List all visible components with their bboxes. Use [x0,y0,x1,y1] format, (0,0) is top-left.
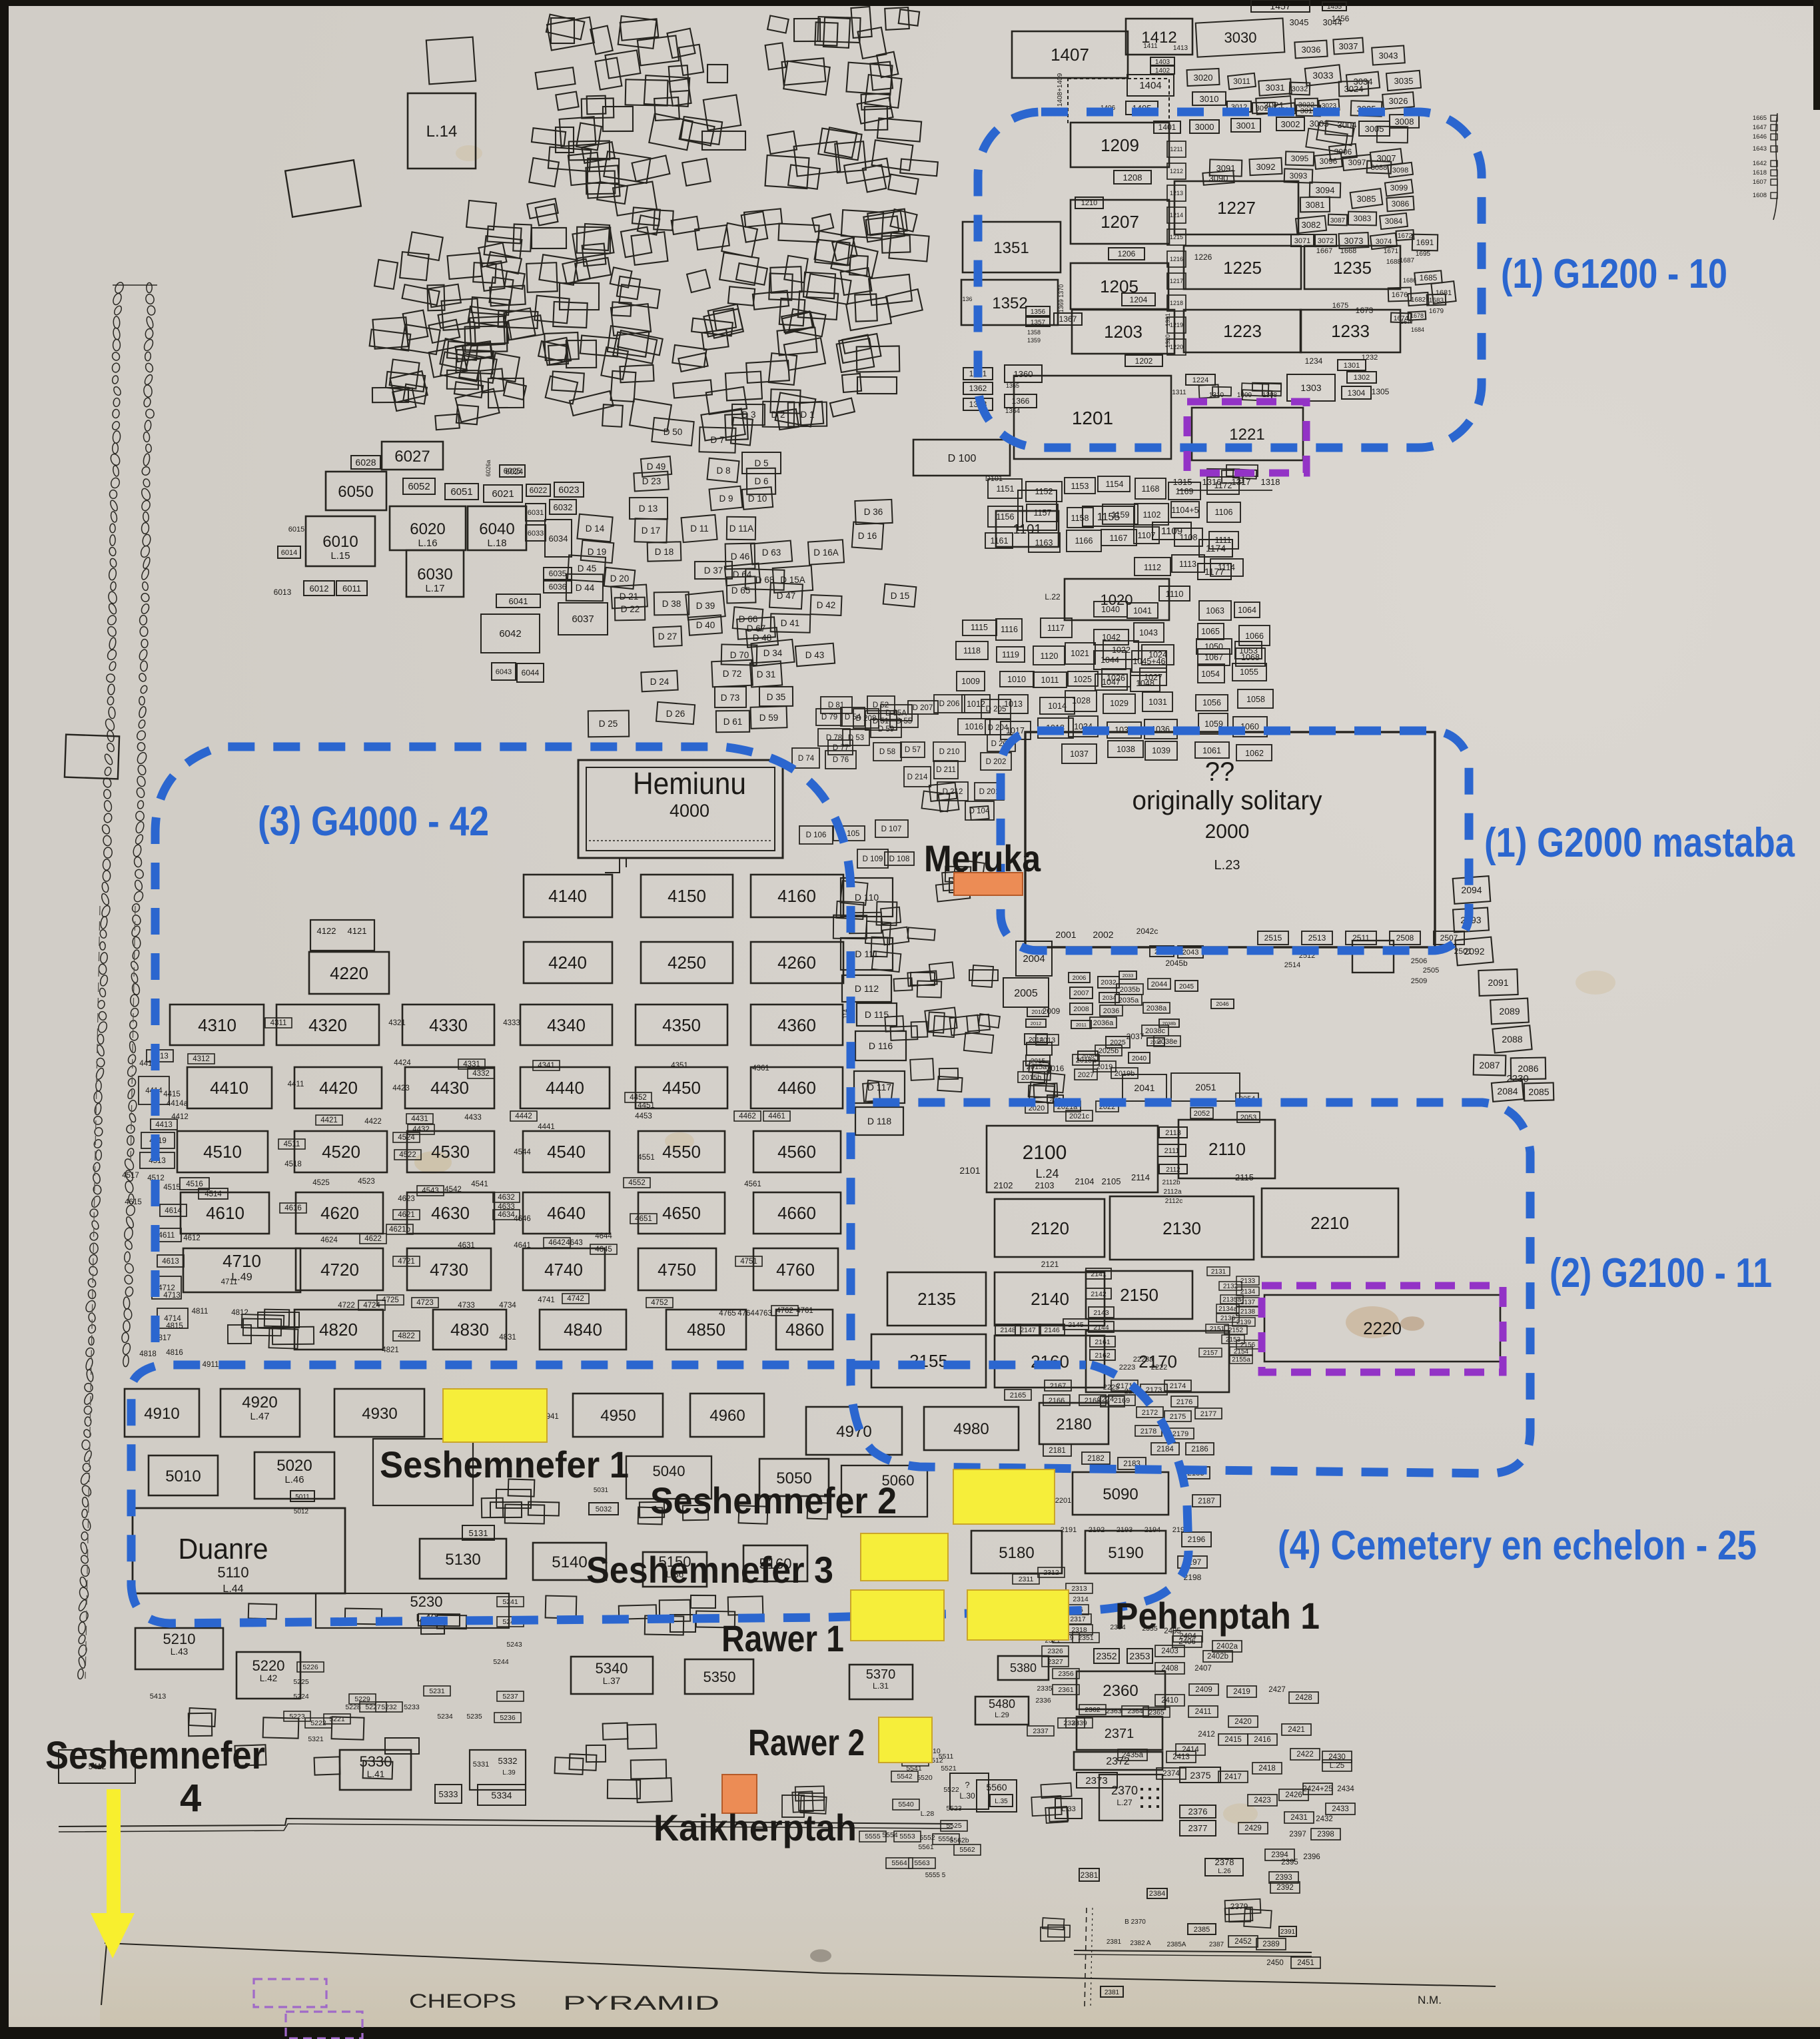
svg-text:2360: 2360 [1103,1682,1138,1700]
svg-text:4515: 4515 [163,1184,181,1192]
svg-text:3020: 3020 [1194,73,1213,83]
svg-text:1064: 1064 [1238,606,1256,615]
svg-text:5110: 5110 [217,1564,248,1581]
svg-text:D 202: D 202 [986,758,1007,766]
svg-text:1665: 1665 [1753,115,1767,122]
svg-text:2151: 2151 [1210,1326,1225,1333]
svg-text:2019b: 2019b [1115,1070,1135,1078]
svg-text:1305: 1305 [1372,387,1390,396]
svg-text:2092: 2092 [1464,946,1484,957]
svg-text:2412: 2412 [1198,1731,1215,1739]
svg-text:4850: 4850 [687,1320,725,1340]
svg-text:4760: 4760 [776,1260,815,1280]
svg-text:4552: 4552 [628,1179,646,1187]
svg-text:4621b: 4621b [389,1226,410,1234]
svg-text:4543: 4543 [422,1187,439,1195]
svg-text:4: 4 [180,1777,201,1820]
svg-text:4646: 4646 [514,1215,531,1223]
svg-text:5370: 5370 [866,1667,896,1682]
svg-text:4462: 4462 [739,1112,756,1120]
svg-text:D 70: D 70 [730,650,749,660]
svg-text:4816: 4816 [166,1349,183,1357]
svg-text:2136: 2136 [1220,1315,1236,1322]
svg-text:2378: 2378 [1215,1857,1234,1867]
svg-text:2176: 2176 [1176,1398,1192,1406]
svg-text:4333: 4333 [503,1019,520,1027]
svg-text:2132: 2132 [1223,1283,1238,1290]
svg-text:1029: 1029 [1110,699,1129,708]
svg-text:4610: 4610 [206,1203,244,1223]
svg-text:2130: 2130 [1162,1218,1201,1238]
svg-text:2432: 2432 [1316,1815,1333,1823]
svg-text:2311: 2311 [1019,1575,1034,1583]
svg-text:4623: 4623 [398,1195,415,1203]
svg-text:L.39: L.39 [502,1769,516,1777]
svg-text:1321: 1321 [1164,313,1171,326]
svg-text:2223a: 2223a [1133,1356,1154,1364]
svg-text:2174: 2174 [1170,1382,1186,1390]
svg-text:5560: 5560 [986,1782,1007,1793]
svg-text:3097: 3097 [1348,158,1366,167]
svg-text:2335: 2335 [1037,1685,1053,1693]
svg-text:4321: 4321 [388,1019,406,1027]
svg-text:1225: 1225 [1223,258,1262,278]
svg-text:1220: 1220 [1170,344,1183,350]
svg-text:2385: 2385 [1194,1926,1210,1934]
svg-text:5228: 5228 [345,1703,361,1711]
svg-text:2505: 2505 [1423,967,1439,975]
svg-text:4711: 4711 [221,1278,238,1286]
svg-text:2169: 2169 [1114,1397,1130,1405]
svg-text:6051: 6051 [450,486,472,498]
svg-text:4612: 4612 [183,1234,201,1242]
svg-text:1011: 1011 [1041,675,1059,685]
svg-text:4642: 4642 [548,1239,566,1247]
svg-text:Kaikherptah: Kaikherptah [654,1807,857,1848]
svg-text:Seshemnefer 1: Seshemnefer 1 [380,1443,629,1485]
svg-text:D 59: D 59 [878,725,894,733]
svg-text:5564: 5564 [891,1859,907,1867]
svg-text:4611: 4611 [159,1232,175,1240]
svg-text:2312: 2312 [1043,1569,1059,1577]
svg-text:2105: 2105 [1102,1176,1121,1186]
svg-text:4615: 4615 [125,1198,142,1206]
svg-text:2363: 2363 [1106,1707,1122,1715]
svg-text:4750: 4750 [658,1260,696,1280]
svg-text:2351: 2351 [1078,1634,1094,1642]
svg-text:1643: 1643 [1753,145,1767,153]
svg-text:4122: 4122 [317,926,336,936]
svg-text:2433: 2433 [1332,1805,1349,1813]
svg-text:1116: 1116 [1001,625,1018,634]
svg-text:3045: 3045 [1290,17,1309,27]
svg-text:2015b: 2015b [1021,1074,1042,1082]
svg-text:2162: 2162 [1095,1352,1111,1360]
svg-text:2223: 2223 [1119,1364,1135,1372]
svg-text:L.28: L.28 [921,1810,935,1818]
svg-text:6042: 6042 [499,628,521,639]
svg-text:6052: 6052 [408,481,430,492]
svg-text:3074: 3074 [1376,238,1392,246]
svg-text:1158: 1158 [1071,514,1089,523]
svg-text:1104+5: 1104+5 [1171,506,1198,515]
svg-text:2402b: 2402b [1207,1653,1228,1661]
svg-text:D 100: D 100 [948,453,977,464]
svg-text:2115: 2115 [1235,1172,1254,1182]
svg-text:2009: 2009 [1043,1007,1061,1016]
svg-text:1357: 1357 [1031,319,1046,326]
svg-text:2222: 2222 [1151,1364,1167,1372]
svg-text:4831: 4831 [499,1334,516,1342]
svg-text:4450: 4450 [662,1078,701,1098]
svg-text:6031: 6031 [528,509,544,517]
svg-text:4630: 4630 [431,1203,470,1223]
svg-text:1118: 1118 [963,646,981,655]
svg-text:2451: 2451 [1297,1959,1314,1967]
svg-text:5334: 5334 [491,1790,512,1801]
svg-text:D 116: D 116 [869,1040,893,1051]
svg-text:2137: 2137 [1240,1299,1256,1306]
svg-text:1009: 1009 [961,677,980,686]
svg-text:1037: 1037 [1070,749,1089,759]
svg-text:4818: 4818 [139,1350,157,1358]
svg-text:3043: 3043 [1379,51,1398,61]
svg-text:1219: 1219 [1170,322,1183,328]
svg-text:2362: 2362 [1085,1706,1101,1714]
svg-text:2165: 2165 [1010,1392,1026,1400]
svg-text:3031: 3031 [1266,83,1285,93]
svg-text:2220: 2220 [1363,1318,1402,1338]
svg-text:2146: 2146 [1044,1326,1060,1334]
svg-text:D 64: D 64 [733,570,752,580]
svg-text:D 59: D 59 [759,713,779,723]
svg-text:D 115: D 115 [865,1009,889,1020]
svg-text:4960: 4960 [709,1407,745,1425]
svg-text:5350: 5350 [703,1669,736,1685]
svg-text:1062: 1062 [1245,749,1264,758]
svg-text:D 73: D 73 [721,693,740,703]
svg-text:2008: 2008 [1073,1005,1089,1013]
svg-text:4410: 4410 [210,1078,248,1098]
svg-text:2180: 2180 [1056,1416,1091,1433]
svg-text:1208: 1208 [1123,173,1142,183]
svg-text:4911: 4911 [203,1361,219,1369]
svg-text:4433: 4433 [464,1114,482,1122]
svg-text:2395: 2395 [1281,1858,1298,1866]
svg-text:2339: 2339 [1071,1719,1087,1727]
svg-text:2373: 2373 [1085,1775,1107,1787]
svg-text:2407: 2407 [1194,1665,1212,1673]
svg-text:2140: 2140 [1031,1289,1069,1309]
svg-text:3093: 3093 [1290,171,1308,181]
svg-text:1063: 1063 [1206,606,1224,615]
svg-text:2398: 2398 [1317,1831,1334,1838]
svg-text:2413: 2413 [1172,1753,1190,1761]
svg-text:2178: 2178 [1140,1427,1156,1435]
svg-text:2040: 2040 [1132,1055,1147,1062]
svg-text:2094: 2094 [1461,885,1482,895]
svg-text:3000: 3000 [1195,122,1214,132]
svg-text:3086: 3086 [1392,199,1410,208]
svg-text:1318: 1318 [1261,477,1280,487]
svg-text:1320: 1320 [1164,334,1171,348]
svg-text:(2) G2100 - 11: (2) G2100 - 11 [1550,1250,1772,1296]
svg-text:6028: 6028 [355,457,376,468]
svg-text:1673: 1673 [1356,306,1374,315]
svg-text:6022: 6022 [530,486,548,495]
svg-text:D 74: D 74 [798,755,815,763]
svg-text:2043: 2043 [1182,949,1199,957]
svg-text:3011: 3011 [1233,77,1250,86]
svg-text:5210: 5210 [163,1631,196,1647]
svg-text:4431: 4431 [411,1115,428,1123]
svg-text:3092: 3092 [1256,162,1276,172]
svg-text:4523: 4523 [358,1178,375,1186]
svg-text:4720: 4720 [320,1260,359,1280]
svg-text:4517: 4517 [122,1172,139,1180]
svg-text:1112: 1112 [1144,563,1161,572]
svg-text:6035: 6035 [549,569,567,578]
svg-text:2037: 2037 [1127,1032,1144,1041]
svg-text:2044: 2044 [1151,981,1167,989]
svg-text:3090: 3090 [1209,173,1228,183]
svg-text:D 2: D 2 [771,410,785,420]
svg-text:1235: 1235 [1333,258,1372,278]
svg-text:1618: 1618 [1753,169,1767,177]
svg-text:1607: 1607 [1753,179,1767,186]
svg-text:1365: 1365 [1006,382,1019,389]
svg-text:1110: 1110 [1166,589,1184,599]
svg-text:D 211: D 211 [936,766,956,774]
svg-text:1358: 1358 [1027,329,1041,336]
svg-text:4811: 4811 [192,1308,209,1316]
svg-text:1311: 1311 [1172,389,1186,396]
svg-text:2161: 2161 [1095,1338,1111,1346]
svg-text:2179: 2179 [1172,1430,1188,1438]
svg-text:4815: 4815 [166,1322,183,1330]
svg-text:1056: 1056 [1202,698,1221,707]
svg-text:2191: 2191 [1061,1526,1077,1534]
svg-text:4160: 4160 [777,886,816,906]
svg-text:1012: 1012 [967,699,985,709]
svg-text:4412: 4412 [171,1113,189,1121]
svg-text:2314: 2314 [1073,1595,1089,1603]
svg-text:D 58: D 58 [879,748,895,756]
svg-text:4920: 4920 [242,1394,277,1412]
svg-text:2434: 2434 [1337,1785,1354,1793]
svg-text:6040: 6040 [479,520,514,538]
svg-text:D 16: D 16 [858,531,877,541]
svg-text:D 46: D 46 [731,552,750,562]
svg-text:3026: 3026 [1389,96,1408,106]
svg-text:2187: 2187 [1198,1497,1215,1505]
svg-text:L.30: L.30 [959,1791,975,1801]
svg-text:1013: 1013 [1004,699,1023,709]
svg-text:5562b: 5562b [949,1836,969,1844]
svg-text:1366: 1366 [1012,396,1030,406]
svg-text:D 45: D 45 [578,564,597,574]
svg-text:2374: 2374 [1162,1770,1180,1778]
svg-text:4980: 4980 [953,1420,989,1438]
svg-text:1216: 1216 [1170,256,1183,262]
svg-text:5331: 5331 [473,1761,489,1769]
svg-text:D 44: D 44 [576,583,595,593]
svg-text:5243: 5243 [506,1641,522,1649]
svg-text:2385A: 2385A [1167,1941,1186,1948]
svg-text:5237: 5237 [502,1693,518,1701]
svg-text:2021c: 2021c [1069,1112,1089,1120]
svg-text:6043: 6043 [496,668,512,676]
svg-text:1677: 1677 [1400,318,1414,325]
svg-text:2084: 2084 [1497,1086,1518,1096]
svg-text:D 22: D 22 [621,604,640,614]
svg-text:L.25: L.25 [1330,1762,1344,1770]
svg-text:1671: 1671 [1384,248,1399,255]
svg-text:2225: 2225 [1103,1384,1119,1392]
svg-text:2313: 2313 [1071,1585,1087,1593]
svg-text:5555: 5555 [865,1833,881,1840]
svg-text:2104: 2104 [1075,1176,1095,1186]
svg-text:4330: 4330 [429,1015,468,1035]
svg-text:3035: 3035 [1394,76,1414,86]
svg-text:D 11: D 11 [690,524,709,534]
svg-text:2410: 2410 [1161,1697,1178,1705]
svg-text:2052: 2052 [1194,1110,1210,1118]
svg-text:2138: 2138 [1240,1308,1256,1316]
svg-text:1211: 1211 [1170,146,1182,153]
svg-text:2002: 2002 [1093,929,1113,940]
svg-text:2147: 2147 [1020,1326,1036,1334]
svg-text:2429: 2429 [1244,1825,1262,1833]
svg-text:1672: 1672 [1398,232,1413,240]
svg-text:4763: 4763 [755,1310,772,1318]
svg-text:3005: 3005 [1365,124,1384,134]
svg-text:2112: 2112 [1166,1166,1180,1174]
svg-text:Meruka: Meruka [924,837,1041,879]
svg-text:D 9: D 9 [719,494,733,504]
svg-text:6030: 6030 [417,566,452,584]
svg-text:5236: 5236 [500,1714,516,1722]
svg-text:1068: 1068 [1241,653,1260,662]
svg-text:D 65: D 65 [731,586,751,596]
svg-text:1106: 1106 [1215,508,1233,517]
svg-text:6037: 6037 [572,613,594,625]
svg-text:4331: 4331 [463,1060,480,1068]
svg-text:1061: 1061 [1202,746,1221,755]
svg-text:4950: 4950 [600,1407,636,1425]
svg-text:2391: 2391 [1280,1928,1296,1936]
svg-text:2143: 2143 [1093,1309,1109,1317]
svg-text:2326: 2326 [1047,1647,1063,1655]
svg-text:2006: 2006 [1073,975,1087,981]
svg-text:3072: 3072 [1318,237,1334,245]
svg-text:5234: 5234 [437,1713,453,1721]
svg-text:D 34: D 34 [763,648,783,658]
svg-text:1204: 1204 [1130,295,1148,304]
svg-text:1031: 1031 [1148,697,1167,707]
svg-text:1408+1409: 1408+1409 [1057,73,1064,107]
svg-text:4524: 4524 [398,1134,415,1142]
svg-text:4812: 4812 [231,1309,248,1317]
svg-text:2393: 2393 [1275,1874,1292,1882]
svg-text:4561: 4561 [744,1180,761,1188]
svg-text:6044: 6044 [522,668,540,677]
svg-text:6021: 6021 [492,488,514,500]
svg-text:1302: 1302 [1354,374,1370,382]
svg-text:2377: 2377 [1188,1823,1208,1833]
svg-text:3030: 3030 [1224,29,1257,46]
svg-text:6027: 6027 [394,448,430,466]
svg-text:5480: 5480 [989,1697,1015,1711]
svg-text:3082: 3082 [1302,220,1321,230]
svg-text:1668: 1668 [1340,247,1356,255]
svg-text:1156: 1156 [997,512,1015,522]
svg-text:1362: 1362 [969,384,987,393]
svg-text:1054: 1054 [1201,669,1220,679]
svg-text:2167: 2167 [1050,1382,1066,1390]
svg-text:1401: 1401 [1158,123,1176,132]
svg-text:2337: 2337 [1033,1727,1049,1735]
svg-text:1021: 1021 [1071,649,1089,658]
svg-text:5340: 5340 [596,1660,628,1677]
svg-text:2032: 2032 [1101,979,1117,987]
svg-text:5520: 5520 [917,1774,933,1782]
svg-text:6020: 6020 [410,520,445,538]
svg-text:5511: 5511 [939,1753,954,1761]
svg-text:3024: 3024 [1344,84,1364,94]
svg-text:2018a: 2018a [1076,1056,1097,1064]
svg-text:3044: 3044 [1323,17,1342,27]
svg-text:6034: 6034 [549,534,568,544]
svg-text:5224: 5224 [293,1693,309,1701]
svg-text:2175: 2175 [1170,1413,1186,1421]
svg-text:D 1: D 1 [800,410,814,420]
svg-text:1369 1370: 1369 1370 [1058,284,1065,313]
svg-text:D 37: D 37 [704,566,723,576]
svg-text:1316: 1316 [1202,477,1222,487]
svg-text:1166: 1166 [1075,536,1093,546]
svg-text:1687: 1687 [1400,257,1415,264]
svg-text:2389: 2389 [1262,1940,1280,1948]
svg-text:2515: 2515 [1264,933,1282,943]
svg-text:2352: 2352 [1096,1651,1117,1661]
svg-text:4413: 4413 [155,1121,173,1129]
svg-text:4621: 4621 [398,1211,415,1219]
svg-text:1201: 1201 [1072,408,1113,428]
svg-text:1233: 1233 [1331,321,1370,341]
svg-text:4762: 4762 [776,1307,793,1315]
svg-text:2186: 2186 [1191,1445,1208,1453]
svg-text:5130: 5130 [445,1551,480,1569]
svg-text:3084: 3084 [1385,216,1403,226]
svg-text:4150: 4150 [668,886,706,906]
svg-text:1117: 1117 [1047,623,1065,633]
svg-text:2150: 2150 [1120,1285,1158,1305]
svg-text:2142: 2142 [1091,1290,1107,1298]
svg-text:2427: 2427 [1268,1686,1286,1694]
svg-text:2356: 2356 [1058,1670,1074,1678]
svg-text:4511: 4511 [284,1140,300,1148]
svg-text:2121: 2121 [1041,1260,1059,1269]
svg-text:4622: 4622 [364,1235,382,1243]
svg-text:2133: 2133 [1240,1278,1256,1285]
svg-text:4452: 4452 [630,1094,647,1102]
svg-text:4721: 4721 [398,1258,415,1266]
svg-text:D 61: D 61 [723,717,743,727]
svg-text:1685: 1685 [1420,273,1438,282]
svg-text:2035a: 2035a [1119,997,1139,1005]
svg-text:1646: 1646 [1753,133,1767,141]
